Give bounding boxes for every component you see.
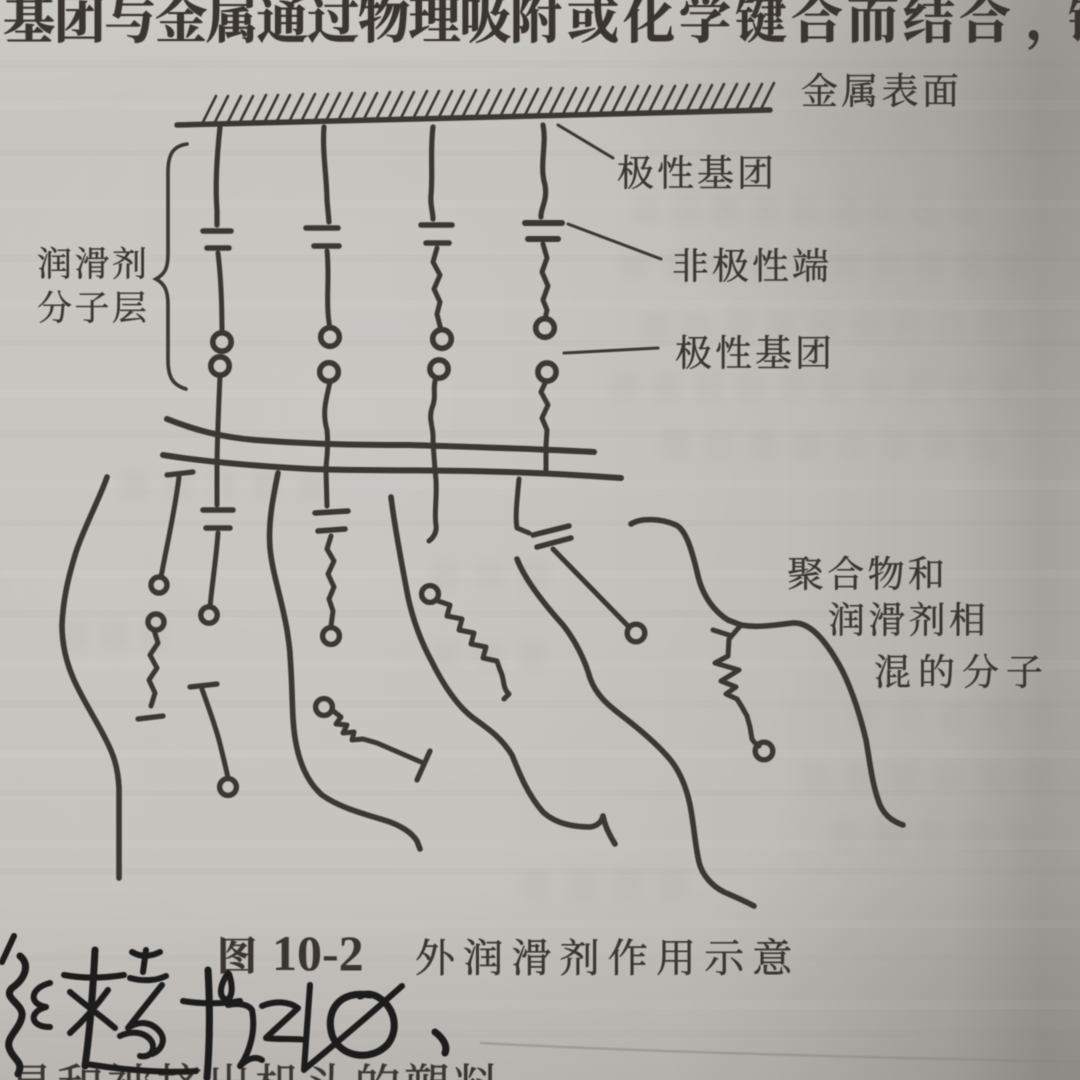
svg-text:10-2: 10-2 [272,925,364,981]
